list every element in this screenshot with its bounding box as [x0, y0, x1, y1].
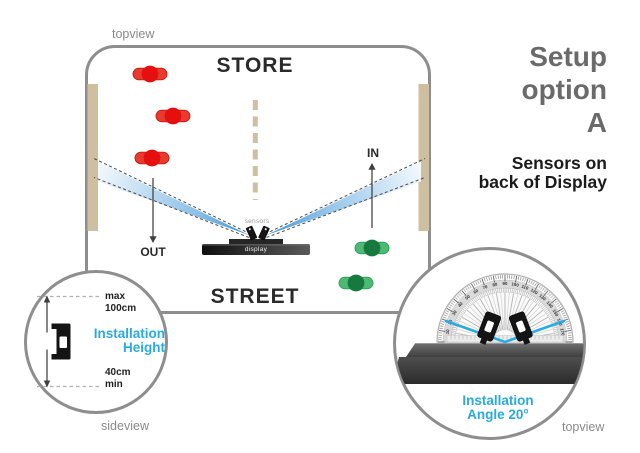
- subtitle-line-2: back of Display: [479, 173, 607, 192]
- out-label: OUT: [140, 245, 165, 259]
- title-line-1: Setup: [521, 40, 607, 73]
- min-word: min: [105, 379, 131, 391]
- min-value: 40cm: [105, 367, 131, 379]
- setup-option-title: Setup option A: [521, 40, 607, 139]
- min-height-label: 40cm min: [105, 367, 131, 391]
- subtitle-line-1: Sensors on: [479, 154, 607, 173]
- max-word: max: [105, 291, 136, 303]
- height-caption-line-2: Height: [55, 341, 165, 355]
- in-label: IN: [367, 146, 379, 160]
- setup-option-a-diagram: 1020304050607080901001101201301401501601…: [0, 0, 640, 453]
- setup-subtitle: Sensors on back of Display: [479, 154, 607, 192]
- topview-label: topview: [112, 27, 154, 41]
- max-value: 100cm: [105, 303, 136, 315]
- store-label: STORE: [217, 54, 294, 78]
- angle-topview-label: topview: [562, 420, 604, 434]
- street-label: STREET: [211, 285, 300, 309]
- installation-angle-caption: Installation Angle 20°: [462, 394, 533, 422]
- max-height-label: max 100cm: [105, 291, 136, 315]
- height-caption-line-1: Installation: [55, 327, 165, 341]
- title-line-2: option: [521, 73, 607, 106]
- sideview-label: sideview: [101, 419, 149, 433]
- installation-height-caption: Installation Height: [55, 327, 165, 355]
- topview-panel: [85, 45, 431, 314]
- title-line-3: A: [521, 106, 607, 139]
- angle-caption-line-2: Angle 20°: [462, 408, 533, 422]
- sensors-label: sensors: [245, 218, 270, 225]
- angle-caption-line-1: Installation: [462, 394, 533, 408]
- display-label: display: [245, 246, 267, 253]
